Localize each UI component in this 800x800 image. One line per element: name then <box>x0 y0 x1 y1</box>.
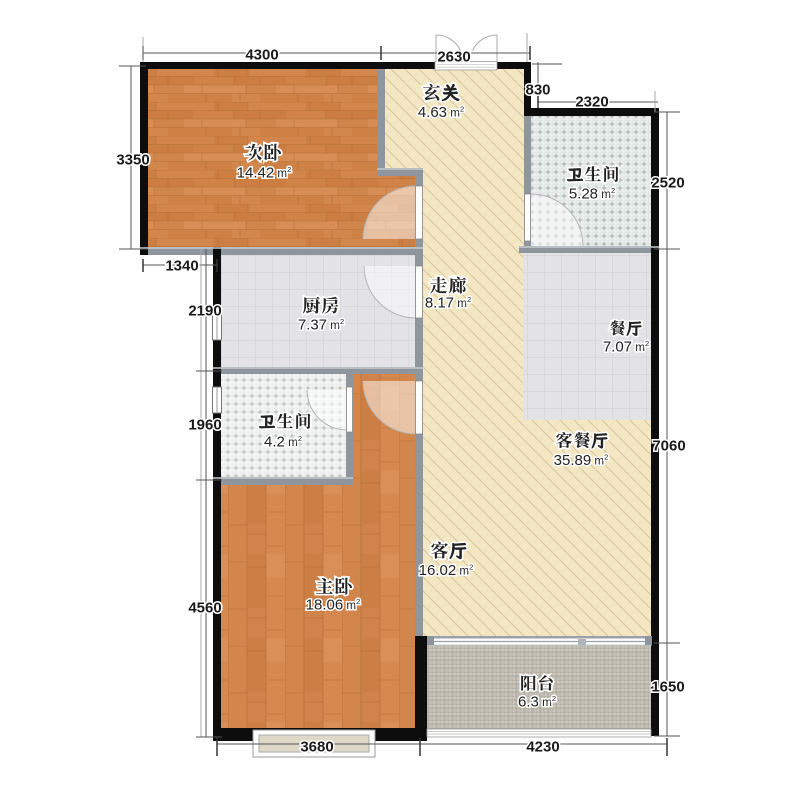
svg-text:4.2 m2: 4.2 m2 <box>264 434 302 451</box>
svg-text:1960: 1960 <box>188 417 221 434</box>
svg-text:4230: 4230 <box>526 739 559 756</box>
svg-text:4.63 m2: 4.63 m2 <box>418 104 464 121</box>
svg-text:4300: 4300 <box>245 47 278 64</box>
svg-text:1650: 1650 <box>651 679 684 696</box>
svg-text:2520: 2520 <box>651 175 684 192</box>
svg-text:8.17 m2: 8.17 m2 <box>425 295 471 312</box>
svg-text:2630: 2630 <box>437 49 470 66</box>
svg-text:7060: 7060 <box>652 438 685 455</box>
svg-text:1340: 1340 <box>165 258 198 275</box>
svg-text:2320: 2320 <box>575 94 608 111</box>
svg-text:14.42 m2: 14.42 m2 <box>237 165 292 182</box>
svg-text:830: 830 <box>525 82 550 99</box>
svg-text:4560: 4560 <box>188 600 221 617</box>
svg-text:3350: 3350 <box>116 152 149 169</box>
svg-text:7.07 m2: 7.07 m2 <box>603 339 649 356</box>
svg-text:2190: 2190 <box>188 303 221 320</box>
svg-text:16.02 m2: 16.02 m2 <box>419 562 474 579</box>
svg-text:7.37 m2: 7.37 m2 <box>298 317 344 334</box>
svg-text:3680: 3680 <box>300 739 333 756</box>
svg-text:35.89 m2: 35.89 m2 <box>554 452 609 469</box>
svg-text:6.3 m2: 6.3 m2 <box>518 694 556 711</box>
svg-text:5.28 m2: 5.28 m2 <box>569 186 615 203</box>
svg-text:18.06 m2: 18.06 m2 <box>306 597 361 614</box>
